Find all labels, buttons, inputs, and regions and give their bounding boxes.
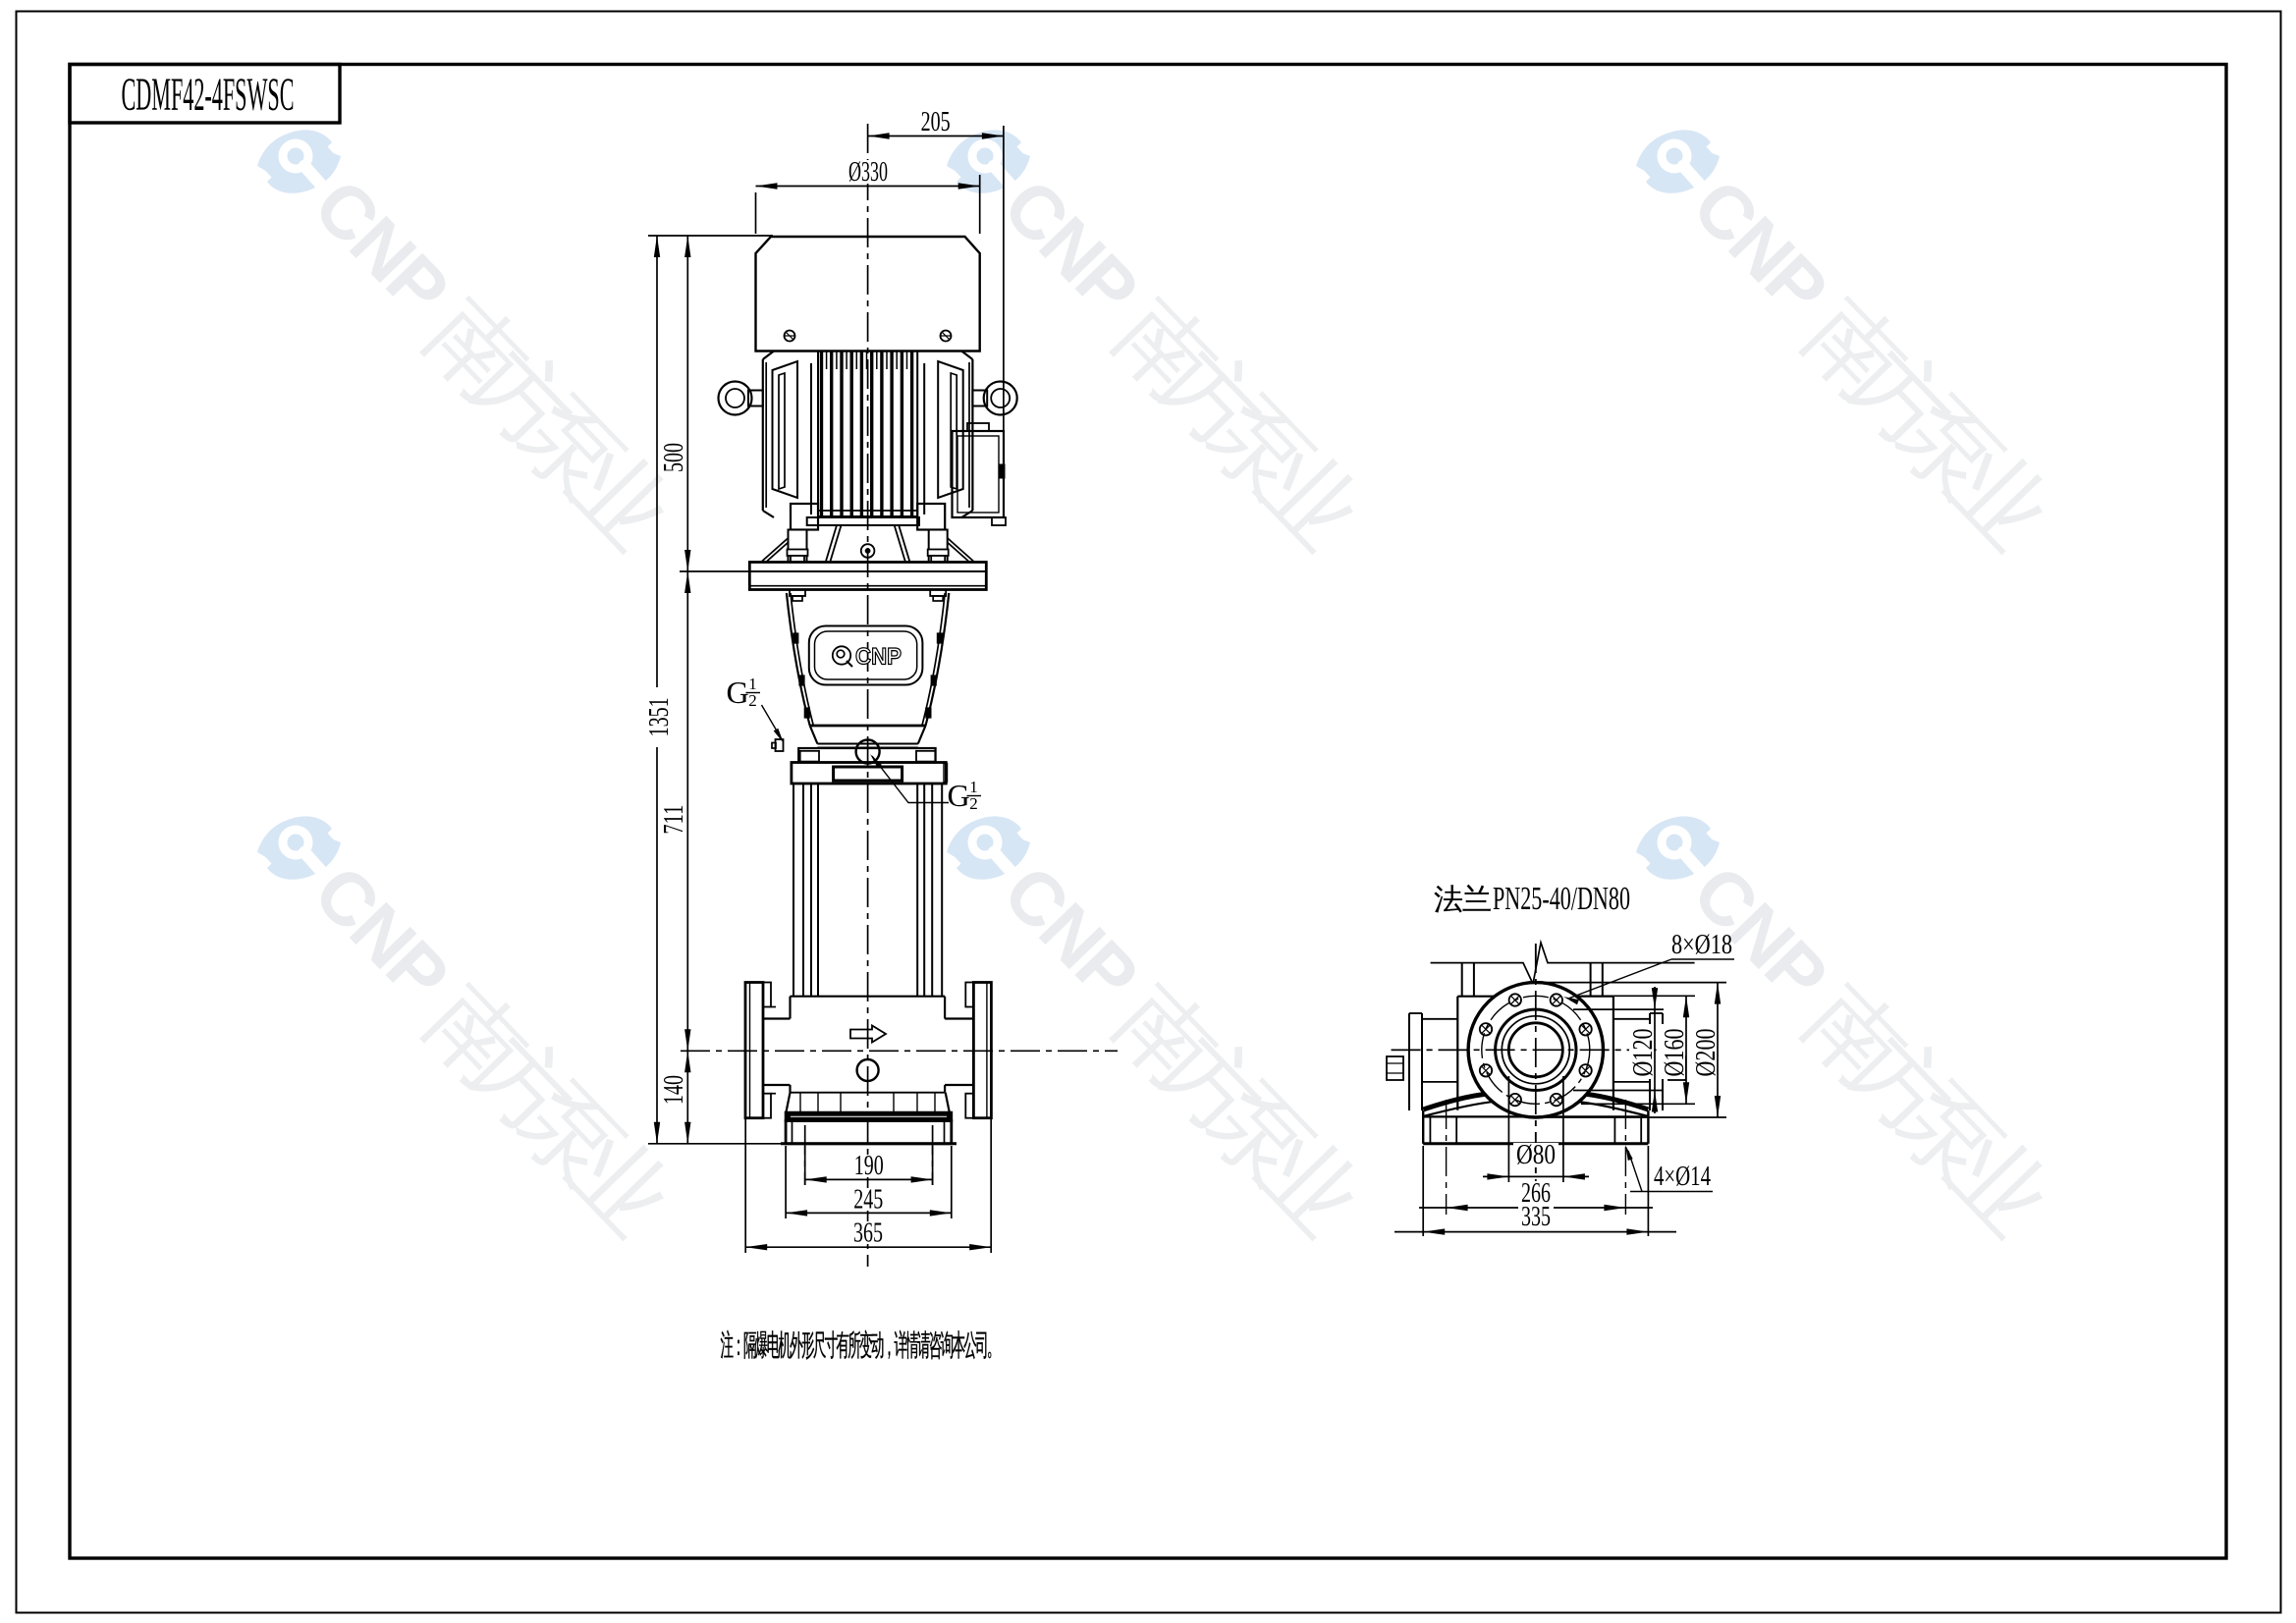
svg-text:245: 245: [853, 1183, 883, 1215]
svg-text:G: G: [947, 778, 969, 813]
svg-text:CDMF42-4FSWSC: CDMF42-4FSWSC: [122, 69, 295, 121]
svg-text:2: 2: [748, 691, 757, 710]
svg-text:140: 140: [658, 1075, 689, 1105]
svg-text:365: 365: [853, 1217, 883, 1249]
svg-text:Ø200: Ø200: [1690, 1029, 1722, 1077]
svg-text:711: 711: [658, 805, 689, 835]
svg-text:1351: 1351: [643, 697, 675, 736]
svg-text:190: 190: [854, 1150, 884, 1181]
svg-text:Ø80: Ø80: [1516, 1139, 1556, 1170]
svg-text:Ø120: Ø120: [1627, 1029, 1659, 1077]
svg-text:205: 205: [921, 106, 951, 137]
svg-text:8×Ø18: 8×Ø18: [1671, 929, 1732, 960]
svg-text:4×Ø14: 4×Ø14: [1654, 1161, 1711, 1192]
svg-text:335: 335: [1521, 1201, 1551, 1232]
svg-text:500: 500: [658, 443, 689, 472]
svg-text:Ø160: Ø160: [1659, 1029, 1690, 1077]
svg-text:PN25-40/DN80: PN25-40/DN80: [1493, 881, 1630, 917]
svg-text:2: 2: [969, 794, 978, 813]
svg-text:Ø330: Ø330: [848, 156, 888, 188]
svg-text:CNP: CNP: [855, 644, 902, 671]
svg-text:G: G: [726, 675, 748, 710]
